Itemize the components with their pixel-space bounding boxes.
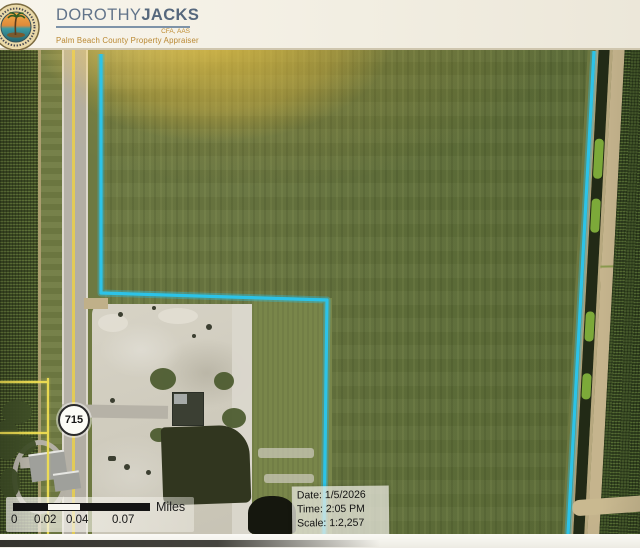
scale-unit-label: Miles [156,500,185,514]
gravel-yard [92,304,256,534]
tree-canopy [14,436,36,454]
pond-tree-shadow [248,496,296,534]
tree-canopy [0,468,20,498]
info-scale-row: Scale: 1:2,257 [297,516,385,531]
page-bottom-margin [0,534,640,548]
parcel-boundary-line [101,54,327,534]
scale-bar-segments: Miles 0 0.02 0.04 0.07 [6,497,194,532]
house-roof [53,470,81,491]
logo-tagline: Palm Beach County Property Appraiser [56,36,206,45]
house-roof [28,450,68,483]
screen-glare [0,48,640,534]
parcel-line [47,378,49,534]
info-time-value: 2:05 PM [326,503,365,515]
ground-debris [192,334,196,338]
tree-canopy [150,428,168,442]
logo-credentials: CFA, AAS [56,28,190,36]
driveway-west [20,454,67,468]
gravel-streak [258,448,314,458]
ground-debris [110,398,115,403]
tree-canopy [214,372,234,390]
driveway-main [62,404,168,419]
plowed-field [161,424,252,505]
photo-shadow [0,540,396,547]
map-canvas[interactable]: 715 Miles 0 0.02 0.04 0.07 Date: 1/5/202… [0,48,640,534]
tree-canopy [222,408,246,428]
map-info-box: Date: 1/5/2026 Time: 2:05 PM Scale: 1:2,… [292,485,390,534]
ground-debris [146,470,151,475]
parcel-boundary-overlay [0,48,640,534]
parcel-boundary-glow [101,54,327,534]
property-appraiser-logo[interactable]: DOROTHYJACKS CFA, AAS Palm Beach County … [0,0,230,48]
lawn-area [252,298,332,534]
gravel-track [232,304,252,534]
logo-name: DOROTHYJACKS [56,7,206,24]
parcel-boundary-line [568,51,594,534]
parked-vehicle [108,456,116,461]
info-time-label: Time: [297,503,323,515]
farm-road-branch [600,267,640,281]
screen: DOROTHYJACKS CFA, AAS Palm Beach County … [0,0,640,548]
parcel-boundary-glow [568,51,594,534]
farm-road-edge [600,264,640,267]
info-date-row: Date: 1/5/2026 [297,489,385,504]
photo-vignette [0,48,640,534]
driveway-north [84,298,108,309]
parcel-line [0,432,47,434]
route-shield-label: 715 [65,414,83,426]
info-time-row: Time: 2:05 PM [297,502,385,517]
canal-algae [590,198,601,232]
road-shoulder-east [88,48,101,534]
ground-debris [118,312,123,317]
gravel-streak [264,474,314,483]
farm-road-curve [571,494,640,516]
info-date-value: 1/5/2026 [325,489,366,501]
gravel-pile [98,314,128,332]
scale-bar-segment [81,503,150,511]
info-date-label: Date: [297,489,322,501]
canal-algae [581,373,591,399]
scale-bar: Miles 0 0.02 0.04 0.07 [6,497,194,532]
canal-bank [584,48,613,534]
tree-canopy [0,420,20,460]
canal-algae [593,138,604,178]
logo-name-last: JACKS [141,6,199,24]
app-header: DOROTHYJACKS CFA, AAS Palm Beach County … [0,0,640,50]
route-shield-715: 715 [58,404,90,436]
info-scale-value: 1:2,257 [329,516,364,528]
canal-algae [584,311,595,341]
road-shoulder-west [41,48,62,534]
field-edge-west [38,48,41,534]
farm-dirt-road [587,48,625,534]
scale-bar-segment [47,503,81,511]
logo-name-first: DOROTHY [56,6,141,24]
grass-strip [562,48,596,534]
info-scale-label: Scale: [297,517,326,529]
building-roof [174,394,187,404]
road-sr715 [62,48,88,534]
tree-canopy [2,400,32,424]
scale-tick-label: 0 [11,514,17,526]
logo-text: DOROTHYJACKS CFA, AAS Palm Beach County … [56,7,206,45]
farmstead-area [88,298,332,534]
parcel-line [0,381,47,383]
scale-tick-label: 0.07 [112,514,134,526]
crop-rows-east [599,48,640,534]
ground-debris [206,324,212,330]
ground-debris [152,306,156,310]
canal [573,48,610,534]
scale-bar-segment [13,503,47,511]
gravel-pile [158,308,198,324]
tree-canopy [150,368,176,390]
canal-bank [570,48,599,534]
farm-field-layer [0,48,640,534]
driveway-loop [12,440,68,514]
east-canal-road-strip [562,48,640,534]
crop-rows-west [0,48,38,534]
ground-debris [124,464,130,470]
scale-tick-label: 0.04 [66,514,88,526]
county-seal-icon [0,2,41,52]
farm-building [172,392,204,426]
scale-tick-label: 0.02 [34,514,56,526]
